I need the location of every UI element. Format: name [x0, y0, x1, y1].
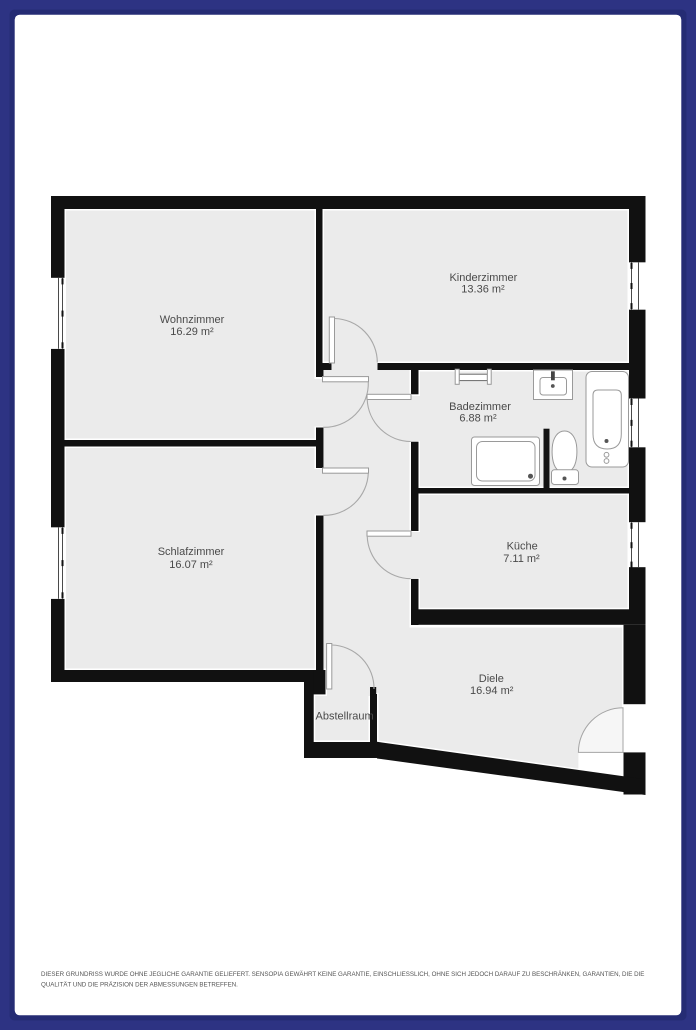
svg-text:Abstellraum: Abstellraum [316, 711, 374, 723]
svg-text:Wohnzimmer: Wohnzimmer [160, 314, 225, 326]
svg-text:16.94 m²: 16.94 m² [470, 685, 514, 697]
svg-text:13.36 m²: 13.36 m² [461, 284, 505, 296]
svg-text:Kinderzimmer: Kinderzimmer [449, 272, 517, 284]
svg-text:QUALITÄT UND DIE PRÄZISION DER: QUALITÄT UND DIE PRÄZISION DER ABMESSUNG… [41, 982, 238, 989]
svg-text:Badezimmer: Badezimmer [449, 401, 511, 413]
svg-text:Küche: Küche [507, 541, 538, 553]
svg-text:6.88 m²: 6.88 m² [459, 413, 497, 425]
svg-text:Diele: Diele [479, 673, 504, 685]
svg-text:7.11 m²: 7.11 m² [503, 553, 540, 565]
svg-text:16.07 m²: 16.07 m² [169, 559, 213, 571]
svg-text:16.29 m²: 16.29 m² [170, 326, 214, 338]
svg-text:Schlafzimmer: Schlafzimmer [158, 546, 225, 558]
svg-text:DIESER GRUNDRISS WURDE OHNE JE: DIESER GRUNDRISS WURDE OHNE JEGLICHE GAR… [41, 971, 644, 978]
